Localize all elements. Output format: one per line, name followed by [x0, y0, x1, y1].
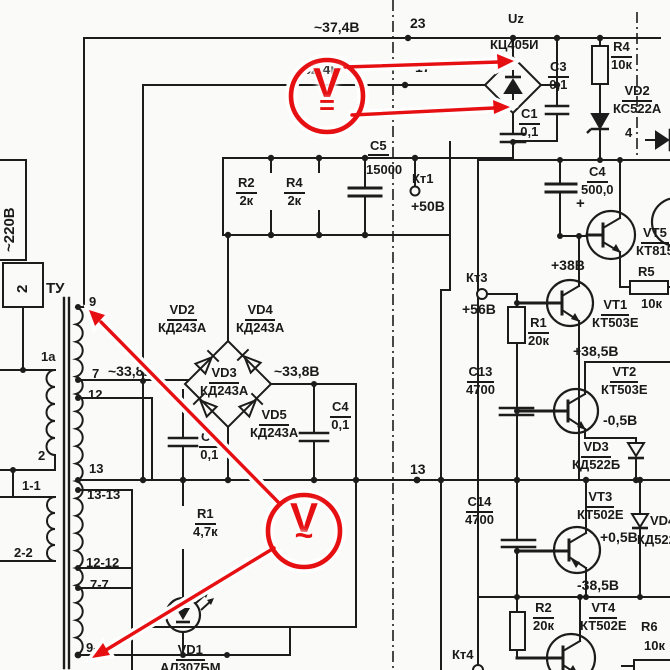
dc-voltmeter-symbol: V = [307, 66, 347, 117]
ac-probe-arrow-2 [106, 548, 274, 650]
ac-probe-arrow-1 [101, 322, 280, 504]
annotated-schematic-page: ~37,4В 23 Uz КЦ405И ~32,4В 17 C30,1 C10,… [0, 0, 670, 670]
ac-mode-icon: ~ [295, 521, 314, 550]
ac-voltmeter-symbol: V ~ [284, 501, 324, 549]
dc-mode-icon: = [319, 93, 335, 117]
annotation-marks [89, 54, 514, 658]
